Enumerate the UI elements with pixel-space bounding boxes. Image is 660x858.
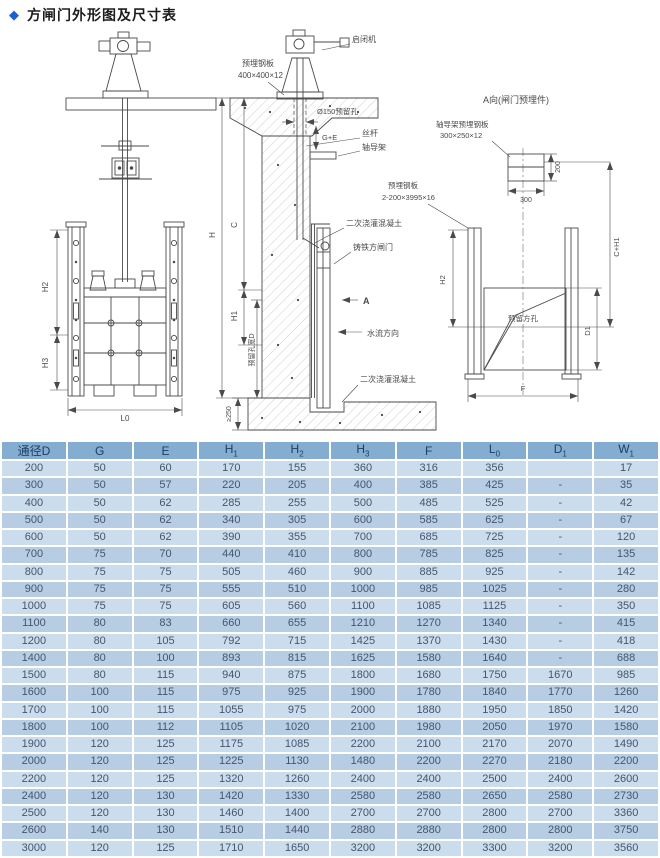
- table-cell: 2730: [594, 789, 658, 804]
- table-cell: 3750: [594, 823, 658, 838]
- dim-h3-front: H3: [41, 357, 50, 368]
- table-cell: 460: [265, 565, 329, 580]
- table-row: 140080100893815162515801640-688: [2, 651, 658, 666]
- table-cell: 115: [134, 668, 198, 683]
- table-cell: 1780: [397, 685, 461, 700]
- table-cell: 135: [594, 547, 658, 562]
- table-cell: 1500: [2, 668, 66, 683]
- table-cell: -: [528, 634, 592, 649]
- table-cell: 2070: [528, 737, 592, 752]
- table-cell: 1000: [331, 582, 395, 597]
- table-cell: 1580: [397, 651, 461, 666]
- table-cell: 385: [397, 478, 461, 493]
- table-cell: 605: [199, 599, 263, 614]
- table-cell: -: [528, 651, 592, 666]
- table-cell: -: [528, 582, 592, 597]
- dim-h2-right: H2: [438, 275, 447, 285]
- table-cell: 2800: [463, 823, 527, 838]
- table-cell: 35: [594, 478, 658, 493]
- table-cell: 525: [463, 496, 527, 511]
- table-cell: 2580: [331, 789, 395, 804]
- table-row: 160010011597592519001780184017701260: [2, 685, 658, 700]
- table-cell: 925: [265, 685, 329, 700]
- table-cell: 2600: [594, 772, 658, 787]
- table-cell: 900: [331, 565, 395, 580]
- table-cell: 875: [265, 668, 329, 683]
- table-row: 1700100115105597520001880195018501420: [2, 703, 658, 718]
- table-cell: 485: [397, 496, 461, 511]
- table-cell: 600: [331, 513, 395, 528]
- dim-h2-front: H2: [41, 281, 50, 292]
- column-header-D: D1: [528, 442, 592, 459]
- dim-c-h1: C+H1: [612, 237, 621, 256]
- table-cell: 785: [397, 547, 461, 562]
- table-cell: 130: [134, 823, 198, 838]
- table-cell: 1840: [463, 685, 527, 700]
- table-row: 900757555551010009851025-280: [2, 582, 658, 597]
- table-cell: 42: [594, 496, 658, 511]
- table-cell: 100: [68, 685, 132, 700]
- table-cell: 1260: [594, 685, 658, 700]
- table-cell: 1200: [2, 634, 66, 649]
- table-cell: -: [528, 530, 592, 545]
- table-cell: 1430: [463, 634, 527, 649]
- table-cell: 75: [134, 582, 198, 597]
- table-cell: 1480: [331, 754, 395, 769]
- table-cell: 105: [134, 634, 198, 649]
- table-cell: 1270: [397, 616, 461, 631]
- table-cell: 200: [2, 461, 66, 476]
- table-cell: 1670: [528, 668, 592, 683]
- label-embed-plate2-2: 2-200×3995×16: [382, 193, 435, 202]
- table-cell: 2700: [528, 806, 592, 821]
- table-cell: 75: [68, 565, 132, 580]
- table-cell: 800: [331, 547, 395, 562]
- table-cell: 700: [2, 547, 66, 562]
- label-embed-plate2-1: 预埋钢板: [388, 180, 418, 190]
- table-cell: 2100: [397, 737, 461, 752]
- table-cell: 142: [594, 565, 658, 580]
- table-cell: 2200: [397, 754, 461, 769]
- table-cell: -: [528, 478, 592, 493]
- table-cell: 400: [2, 496, 66, 511]
- label-secondary-concrete-bottom: 二次浇灌混凝土: [360, 374, 416, 384]
- table-cell: 560: [265, 599, 329, 614]
- table-cell: 140: [68, 823, 132, 838]
- table-cell: 255: [265, 496, 329, 511]
- table-cell: 1640: [463, 651, 527, 666]
- table-cell: 1970: [528, 720, 592, 735]
- table-cell: 940: [199, 668, 263, 683]
- label-hole150: Ø150预留孔: [317, 106, 358, 116]
- table-cell: -: [528, 565, 592, 580]
- table-cell: 83: [134, 616, 198, 631]
- table-cell: 57: [134, 478, 198, 493]
- table-cell: 120: [68, 789, 132, 804]
- table-cell: 2170: [463, 737, 527, 752]
- view-a-title: A向(闸门预埋件): [483, 94, 549, 105]
- table-cell: 100: [68, 720, 132, 735]
- table-cell: 700: [331, 530, 395, 545]
- table-cell: 500: [331, 496, 395, 511]
- table-cell: 1210: [331, 616, 395, 631]
- table-cell: 3560: [594, 841, 658, 857]
- table-row: 10007575605560110010851125-350: [2, 599, 658, 614]
- table-cell: 1340: [463, 616, 527, 631]
- dim-c: C: [230, 222, 239, 228]
- table-cell: 356: [463, 461, 527, 476]
- table-cell: 975: [199, 685, 263, 700]
- table-cell: 70: [134, 547, 198, 562]
- column-header-H: H2: [265, 442, 329, 459]
- table-cell: [528, 461, 592, 476]
- table-row: 18001001121105102021001980205019701580: [2, 720, 658, 735]
- table-cell: 112: [134, 720, 198, 735]
- table-cell: 75: [68, 599, 132, 614]
- table-cell: 1105: [199, 720, 263, 735]
- table-row: 6005062390355700685725-120: [2, 530, 658, 545]
- table-cell: 17: [594, 461, 658, 476]
- table-cell: 125: [134, 737, 198, 752]
- section-view: 启闭机 预埋钢板 400×400×12 Ø150预留孔 G+E 丝杆 轴导架 二…: [208, 30, 436, 430]
- dim-200: 200: [555, 161, 562, 173]
- table-cell: 62: [134, 530, 198, 545]
- table-cell: 2200: [331, 737, 395, 752]
- table-cell: 1850: [528, 703, 592, 718]
- table-cell: 985: [594, 668, 658, 683]
- table-cell: 1260: [265, 772, 329, 787]
- table-cell: 50: [68, 530, 132, 545]
- table-cell: 2270: [463, 754, 527, 769]
- column-header-F: F: [397, 442, 461, 459]
- table-cell: 1025: [463, 582, 527, 597]
- table-cell: 1400: [265, 806, 329, 821]
- dimension-table: 通径DGEH1H2H3FL0D1W1 200506017015536031635…: [0, 440, 660, 858]
- label-hoist: 启闭机: [352, 34, 376, 44]
- dim-300: 300: [520, 197, 532, 204]
- table-cell: 2500: [463, 772, 527, 787]
- dim-h: H: [208, 232, 217, 238]
- table-cell: 1750: [463, 668, 527, 683]
- front-view: H2 H3 L0: [41, 32, 216, 423]
- table-cell: 205: [265, 478, 329, 493]
- table-cell: 3000: [2, 841, 66, 857]
- table-cell: 3300: [463, 841, 527, 857]
- table-cell: 1370: [397, 634, 461, 649]
- table-cell: 305: [265, 513, 329, 528]
- table-cell: 900: [2, 582, 66, 597]
- column-header-W: W1: [594, 442, 658, 459]
- table-cell: 155: [265, 461, 329, 476]
- table-cell: 1700: [2, 703, 66, 718]
- column-header-H: H3: [331, 442, 395, 459]
- table-row: 5005062340305600585625-67: [2, 513, 658, 528]
- table-cell: 1055: [199, 703, 263, 718]
- dim-f: F: [521, 384, 526, 393]
- table-cell: 75: [134, 599, 198, 614]
- table-cell: 100: [134, 651, 198, 666]
- table-cell: 350: [594, 599, 658, 614]
- label-screw: 丝杆: [362, 128, 378, 138]
- table-cell: 285: [199, 496, 263, 511]
- table-cell: 1420: [199, 789, 263, 804]
- table-cell: 1020: [265, 720, 329, 735]
- table-cell: 925: [463, 565, 527, 580]
- table-cell: 555: [199, 582, 263, 597]
- table-cell: 410: [265, 547, 329, 562]
- table-cell: 120: [594, 530, 658, 545]
- table-cell: 50: [68, 496, 132, 511]
- table-cell: 2400: [331, 772, 395, 787]
- table-cell: 2580: [528, 789, 592, 804]
- table-cell: 400: [331, 478, 395, 493]
- table-cell: 2600: [2, 823, 66, 838]
- table-cell: 500: [2, 513, 66, 528]
- table-cell: 2050: [463, 720, 527, 735]
- table-row: 1500801159408751800168017501670985: [2, 668, 658, 683]
- table-cell: 625: [463, 513, 527, 528]
- table-cell: 360: [331, 461, 395, 476]
- table-cell: 660: [199, 616, 263, 631]
- table-cell: 2180: [528, 754, 592, 769]
- table-row: 7007570440410800785825-135: [2, 547, 658, 562]
- table-cell: 1710: [199, 841, 263, 857]
- table-cell: 655: [265, 616, 329, 631]
- table-cell: 1625: [331, 651, 395, 666]
- table-cell: 1490: [594, 737, 658, 752]
- table-cell: 3200: [528, 841, 592, 857]
- table-cell: 115: [134, 685, 198, 700]
- table-row: 120080105792715142513701430-418: [2, 634, 658, 649]
- table-cell: 2400: [397, 772, 461, 787]
- column-header-H: H1: [199, 442, 263, 459]
- table-header-row: 通径DGEH1H2H3FL0D1W1: [2, 442, 658, 459]
- table-cell: 80: [68, 634, 132, 649]
- dim-hole-width: 预留孔宽D: [247, 333, 256, 366]
- table-cell: -: [528, 496, 592, 511]
- table-cell: 985: [397, 582, 461, 597]
- table-cell: 1225: [199, 754, 263, 769]
- table-cell: 120: [68, 737, 132, 752]
- table-cell: 1800: [2, 720, 66, 735]
- table-cell: 440: [199, 547, 263, 562]
- dim-min250: ≥250: [226, 406, 233, 422]
- table-cell: 50: [68, 461, 132, 476]
- table-cell: 2500: [2, 806, 66, 821]
- table-cell: 120: [68, 841, 132, 857]
- label-guide-plate-2: 300×250×12: [440, 131, 482, 140]
- table-cell: 1800: [331, 668, 395, 683]
- table-cell: 1400: [2, 651, 66, 666]
- table-cell: 505: [199, 565, 263, 580]
- table-cell: 50: [68, 478, 132, 493]
- table-cell: 80: [68, 616, 132, 631]
- table-cell: 1770: [528, 685, 592, 700]
- table-row: 26001401301510144028802880280028003750: [2, 823, 658, 838]
- table-cell: 80: [68, 668, 132, 683]
- table-cell: 2650: [463, 789, 527, 804]
- table-cell: 1580: [594, 720, 658, 735]
- table-cell: 893: [199, 651, 263, 666]
- table-cell: 2800: [528, 823, 592, 838]
- table-cell: 120: [68, 772, 132, 787]
- table-cell: 1980: [397, 720, 461, 735]
- table-row: 20001201251225113014802200227021802200: [2, 754, 658, 769]
- table-cell: 280: [594, 582, 658, 597]
- table-cell: 510: [265, 582, 329, 597]
- label-guide-plate-1: 轴导架预埋钢板: [436, 119, 489, 129]
- table-row: 200506017015536031635617: [2, 461, 658, 476]
- table-cell: 130: [134, 789, 198, 804]
- label-square-hole: 预留方孔: [508, 313, 538, 323]
- column-header-L: L0: [463, 442, 527, 459]
- table-cell: 316: [397, 461, 461, 476]
- table-cell: 2400: [528, 772, 592, 787]
- table-cell: 75: [68, 547, 132, 562]
- table-cell: 2580: [397, 789, 461, 804]
- table-row: 11008083660655121012701340-415: [2, 616, 658, 631]
- table-cell: 800: [2, 565, 66, 580]
- table-cell: 1175: [199, 737, 263, 752]
- table-cell: 815: [265, 651, 329, 666]
- table-cell: 1100: [331, 599, 395, 614]
- table-cell: 62: [134, 513, 198, 528]
- column-header-通径D: 通径D: [2, 442, 66, 459]
- table-cell: 125: [134, 754, 198, 769]
- label-embed-plate-1: 预埋钢板: [242, 58, 274, 68]
- dim-ge: G+E: [322, 133, 337, 142]
- table-cell: 600: [2, 530, 66, 545]
- table-cell: 80: [68, 651, 132, 666]
- table-cell: 75: [134, 565, 198, 580]
- table-cell: 1100: [2, 616, 66, 631]
- table-cell: 1130: [265, 754, 329, 769]
- table-cell: -: [528, 513, 592, 528]
- table-cell: 1510: [199, 823, 263, 838]
- table-cell: 725: [463, 530, 527, 545]
- table-cell: 792: [199, 634, 263, 649]
- table-cell: 1650: [265, 841, 329, 857]
- label-secondary-concrete-top: 二次浇灌混凝土: [346, 218, 402, 228]
- label-embed-plate-2: 400×400×12: [238, 71, 283, 80]
- table-cell: 685: [397, 530, 461, 545]
- table-cell: -: [528, 616, 592, 631]
- table-row: 8007575505460900885925-142: [2, 565, 658, 580]
- table-cell: 120: [68, 754, 132, 769]
- table-row: 4005062285255500485525-42: [2, 496, 658, 511]
- table-cell: 3200: [397, 841, 461, 857]
- table-cell: 3200: [331, 841, 395, 857]
- table-cell: 1420: [594, 703, 658, 718]
- table-cell: 1460: [199, 806, 263, 821]
- column-header-E: E: [134, 442, 198, 459]
- table-cell: 1600: [2, 685, 66, 700]
- table-cell: 3360: [594, 806, 658, 821]
- table-cell: 1950: [463, 703, 527, 718]
- drawing-area: H2 H3 L0: [0, 0, 660, 438]
- table-cell: 1440: [265, 823, 329, 838]
- table-row: 3005057220205400385425-35: [2, 478, 658, 493]
- table-row: 30001201251710165032003200330032003560: [2, 841, 658, 857]
- table-cell: 1125: [463, 599, 527, 614]
- table-cell: 390: [199, 530, 263, 545]
- table-body: 2005060170155360316356173005057220205400…: [2, 461, 658, 856]
- label-guide-frame: 轴导架: [362, 142, 386, 152]
- table-cell: 2880: [331, 823, 395, 838]
- table-cell: 1425: [331, 634, 395, 649]
- table-row: 24001201301420133025802580265025802730: [2, 789, 658, 804]
- table-cell: 2880: [397, 823, 461, 838]
- table-cell: 2000: [331, 703, 395, 718]
- table-cell: 2200: [594, 754, 658, 769]
- table-cell: 2700: [397, 806, 461, 821]
- table-cell: 2800: [463, 806, 527, 821]
- table-cell: 100: [68, 703, 132, 718]
- table-cell: 1085: [265, 737, 329, 752]
- table-cell: 300: [2, 478, 66, 493]
- table-cell: 340: [199, 513, 263, 528]
- table-cell: 2100: [331, 720, 395, 735]
- table-row: 22001201251320126024002400250024002600: [2, 772, 658, 787]
- table-row: 25001201301460140027002700280027003360: [2, 806, 658, 821]
- table-cell: 1330: [265, 789, 329, 804]
- table-cell: 75: [68, 582, 132, 597]
- table-cell: 130: [134, 806, 198, 821]
- table-cell: 825: [463, 547, 527, 562]
- table-cell: 688: [594, 651, 658, 666]
- table-cell: 1880: [397, 703, 461, 718]
- table-cell: 1900: [331, 685, 395, 700]
- table-cell: 355: [265, 530, 329, 545]
- label-flow-direction: 水流方向: [367, 328, 399, 338]
- table-cell: 715: [265, 634, 329, 649]
- table-cell: 50: [68, 513, 132, 528]
- table-row: 19001201251175108522002100217020701490: [2, 737, 658, 752]
- table-cell: 67: [594, 513, 658, 528]
- table-cell: 125: [134, 772, 198, 787]
- table-cell: 2400: [2, 789, 66, 804]
- table-cell: 62: [134, 496, 198, 511]
- table-cell: 2000: [2, 754, 66, 769]
- table-cell: 115: [134, 703, 198, 718]
- table-cell: -: [528, 547, 592, 562]
- table-cell: 120: [68, 806, 132, 821]
- embedded-parts-view: A向(闸门预埋件) 轴导架预埋钢板 300×250×12 200 300 预埋钢…: [382, 94, 621, 402]
- table-cell: 1680: [397, 668, 461, 683]
- table-cell: -: [528, 599, 592, 614]
- table-cell: 585: [397, 513, 461, 528]
- table-cell: 170: [199, 461, 263, 476]
- table-cell: 975: [265, 703, 329, 718]
- table-cell: 125: [134, 841, 198, 857]
- table-cell: 220: [199, 478, 263, 493]
- table-cell: 885: [397, 565, 461, 580]
- table-cell: 1900: [2, 737, 66, 752]
- table-cell: 60: [134, 461, 198, 476]
- label-cast-iron-gate: 铸铁方闸门: [353, 242, 393, 252]
- table-cell: 2200: [2, 772, 66, 787]
- table-cell: 415: [594, 616, 658, 631]
- table-cell: 2700: [331, 806, 395, 821]
- table-cell: 1085: [397, 599, 461, 614]
- table-cell: 418: [594, 634, 658, 649]
- column-header-G: G: [68, 442, 132, 459]
- table-cell: 425: [463, 478, 527, 493]
- dim-d1: D1: [583, 326, 592, 336]
- table-cell: 1000: [2, 599, 66, 614]
- label-section-a: A: [363, 296, 370, 306]
- dim-h1: H1: [230, 310, 239, 321]
